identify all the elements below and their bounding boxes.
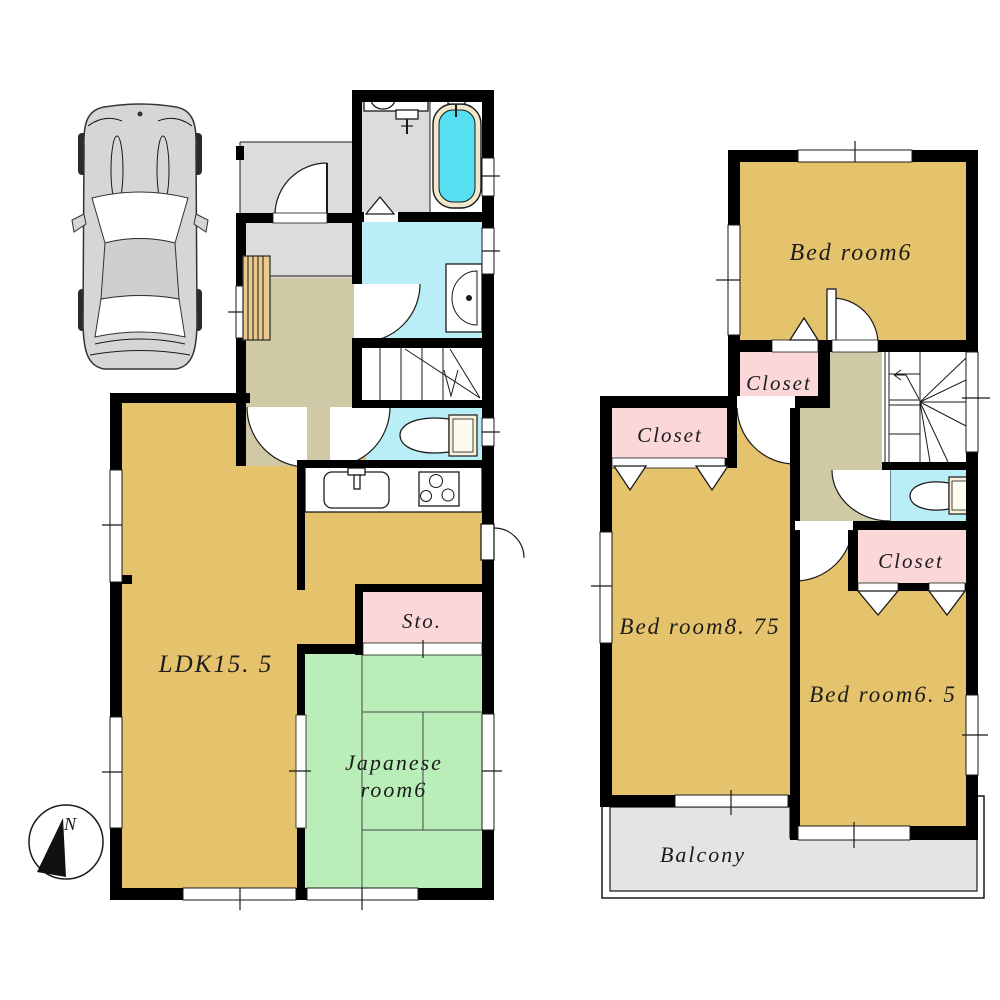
label-closet-a: Closet [746,371,812,395]
label-closet-c: Closet [878,549,944,573]
stairs-1f [358,345,483,402]
label-bedroom-6: Bed room6 [789,240,912,266]
car-windshield [92,192,188,243]
window [966,352,978,452]
label-bedroom-65: Bed room6. 5 [809,682,957,707]
label-bedroom-875: Bed room8. 75 [619,614,780,639]
floor-plan-page: LDK15. 5 Sto. Japanese room6 N [0,0,1000,1000]
car-icon [72,104,208,369]
stairs-2f [882,352,966,462]
floor-plan-2f: Bed room6 Closet Closet Closet Bed room8… [591,141,990,898]
compass-north-label: N [63,814,78,834]
floor-plan-drawing: LDK15. 5 Sto. Japanese room6 N [0,0,1000,1000]
label-japanese-room-2: room6 [361,777,428,802]
compass-icon: N [29,805,103,879]
window [110,470,122,582]
label-japanese-room-1: Japanese [345,750,443,775]
label-balcony: Balcony [660,842,746,867]
back-door-swing [494,528,524,558]
label-closet-b: Closet [637,423,703,447]
window [482,158,494,196]
window [600,532,612,643]
window [482,714,494,830]
car-roof [101,239,179,300]
bedroom6-door-leaf [827,289,836,341]
label-storage: Sto. [402,609,442,633]
back-door-leaf [481,524,494,560]
entrance-door-sill [273,213,327,223]
bedroom6-door-sill [832,340,878,352]
sink-faucet-icon [354,475,360,489]
shoe-cabinet [243,256,270,340]
washer-faucet-icon [396,110,418,119]
label-ldk: LDK15. 5 [158,651,274,678]
car-rear-window [95,296,185,338]
